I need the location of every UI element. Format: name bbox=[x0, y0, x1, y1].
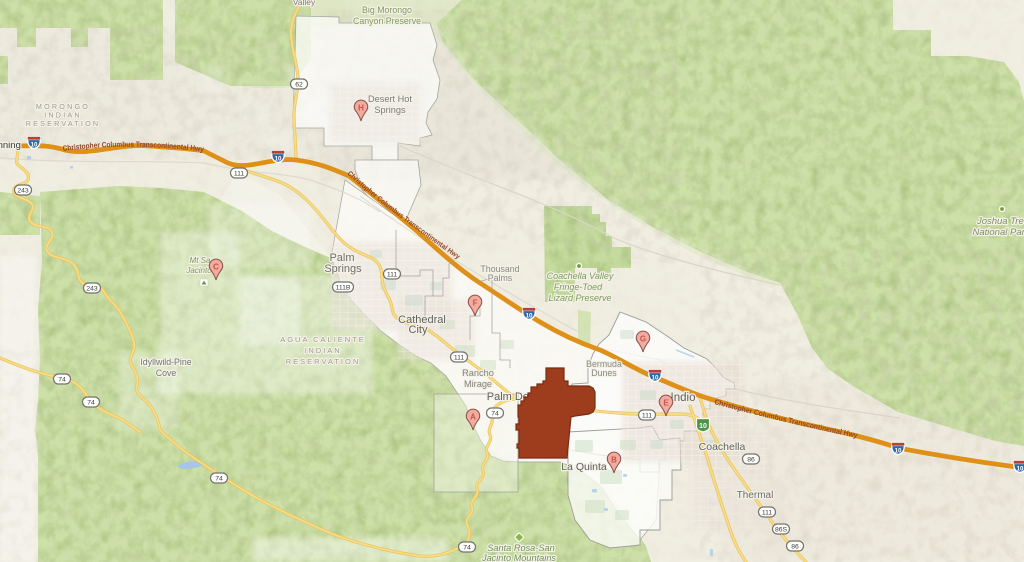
svg-text:Banning: Banning bbox=[0, 140, 21, 151]
svg-text:Joshua Tree: Joshua Tree bbox=[976, 216, 1024, 227]
svg-text:74: 74 bbox=[491, 410, 499, 417]
svg-text:243: 243 bbox=[86, 285, 98, 292]
svg-text:La Quinta: La Quinta bbox=[561, 461, 607, 473]
svg-text:111: 111 bbox=[387, 271, 398, 278]
svg-text:Cove: Cove bbox=[156, 368, 177, 378]
svg-text:Dunes: Dunes bbox=[591, 368, 617, 378]
svg-text:Thermal: Thermal bbox=[737, 490, 774, 501]
svg-text:RESERVATION: RESERVATION bbox=[26, 119, 101, 128]
svg-text:74: 74 bbox=[87, 399, 95, 406]
svg-text:G: G bbox=[640, 335, 646, 344]
svg-text:B: B bbox=[611, 456, 617, 465]
svg-text:AGUA CALIENTE: AGUA CALIENTE bbox=[280, 335, 366, 344]
svg-text:Springs: Springs bbox=[374, 105, 406, 115]
svg-text:62: 62 bbox=[295, 81, 303, 88]
svg-text:Lizard Preserve: Lizard Preserve bbox=[548, 293, 611, 303]
svg-text:Rancho: Rancho bbox=[462, 368, 494, 378]
svg-text:74: 74 bbox=[463, 544, 471, 551]
svg-text:Big Morongo: Big Morongo bbox=[362, 5, 412, 15]
svg-text:86: 86 bbox=[791, 543, 799, 550]
svg-text:Mirage: Mirage bbox=[464, 379, 492, 389]
svg-text:111: 111 bbox=[762, 509, 773, 516]
svg-text:A: A bbox=[470, 413, 476, 422]
svg-text:H: H bbox=[358, 104, 364, 113]
svg-text:10: 10 bbox=[699, 423, 707, 430]
svg-text:Coachella Valley: Coachella Valley bbox=[547, 271, 614, 281]
svg-text:E: E bbox=[663, 399, 669, 408]
svg-text:111: 111 bbox=[454, 354, 465, 361]
svg-text:Canyon Preserve: Canyon Preserve bbox=[353, 16, 421, 26]
svg-text:RESERVATION: RESERVATION bbox=[286, 357, 361, 366]
svg-text:Jacinto: Jacinto bbox=[185, 266, 212, 275]
svg-text:Santa Rosa-San: Santa Rosa-San bbox=[487, 543, 554, 553]
svg-text:74: 74 bbox=[58, 376, 66, 383]
svg-text:Desert Hot: Desert Hot bbox=[368, 94, 412, 104]
svg-text:Fringe-Toed: Fringe-Toed bbox=[554, 282, 603, 292]
svg-text:Springs: Springs bbox=[324, 263, 362, 275]
svg-text:Palms: Palms bbox=[488, 273, 513, 283]
svg-text:74: 74 bbox=[215, 475, 223, 482]
svg-text:F: F bbox=[473, 299, 478, 308]
svg-text:Coachella: Coachella bbox=[699, 441, 746, 453]
svg-text:Mt Sa: Mt Sa bbox=[190, 256, 211, 265]
svg-text:C: C bbox=[213, 263, 219, 272]
svg-text:Valley: Valley bbox=[293, 0, 316, 7]
svg-text:86S: 86S bbox=[775, 526, 788, 533]
svg-text:243: 243 bbox=[17, 187, 29, 194]
svg-text:111: 111 bbox=[234, 170, 245, 177]
svg-text:Jacinto Mountains: Jacinto Mountains bbox=[481, 553, 556, 562]
svg-text:111: 111 bbox=[642, 412, 653, 419]
svg-text:86: 86 bbox=[747, 456, 755, 463]
svg-text:National Park: National Park bbox=[972, 227, 1024, 238]
svg-text:Idyllwild-Pine: Idyllwild-Pine bbox=[140, 357, 191, 367]
svg-text:City: City bbox=[409, 324, 428, 336]
svg-text:INDIAN: INDIAN bbox=[304, 346, 341, 355]
svg-text:Indio: Indio bbox=[671, 392, 696, 404]
svg-text:111B: 111B bbox=[336, 284, 351, 291]
